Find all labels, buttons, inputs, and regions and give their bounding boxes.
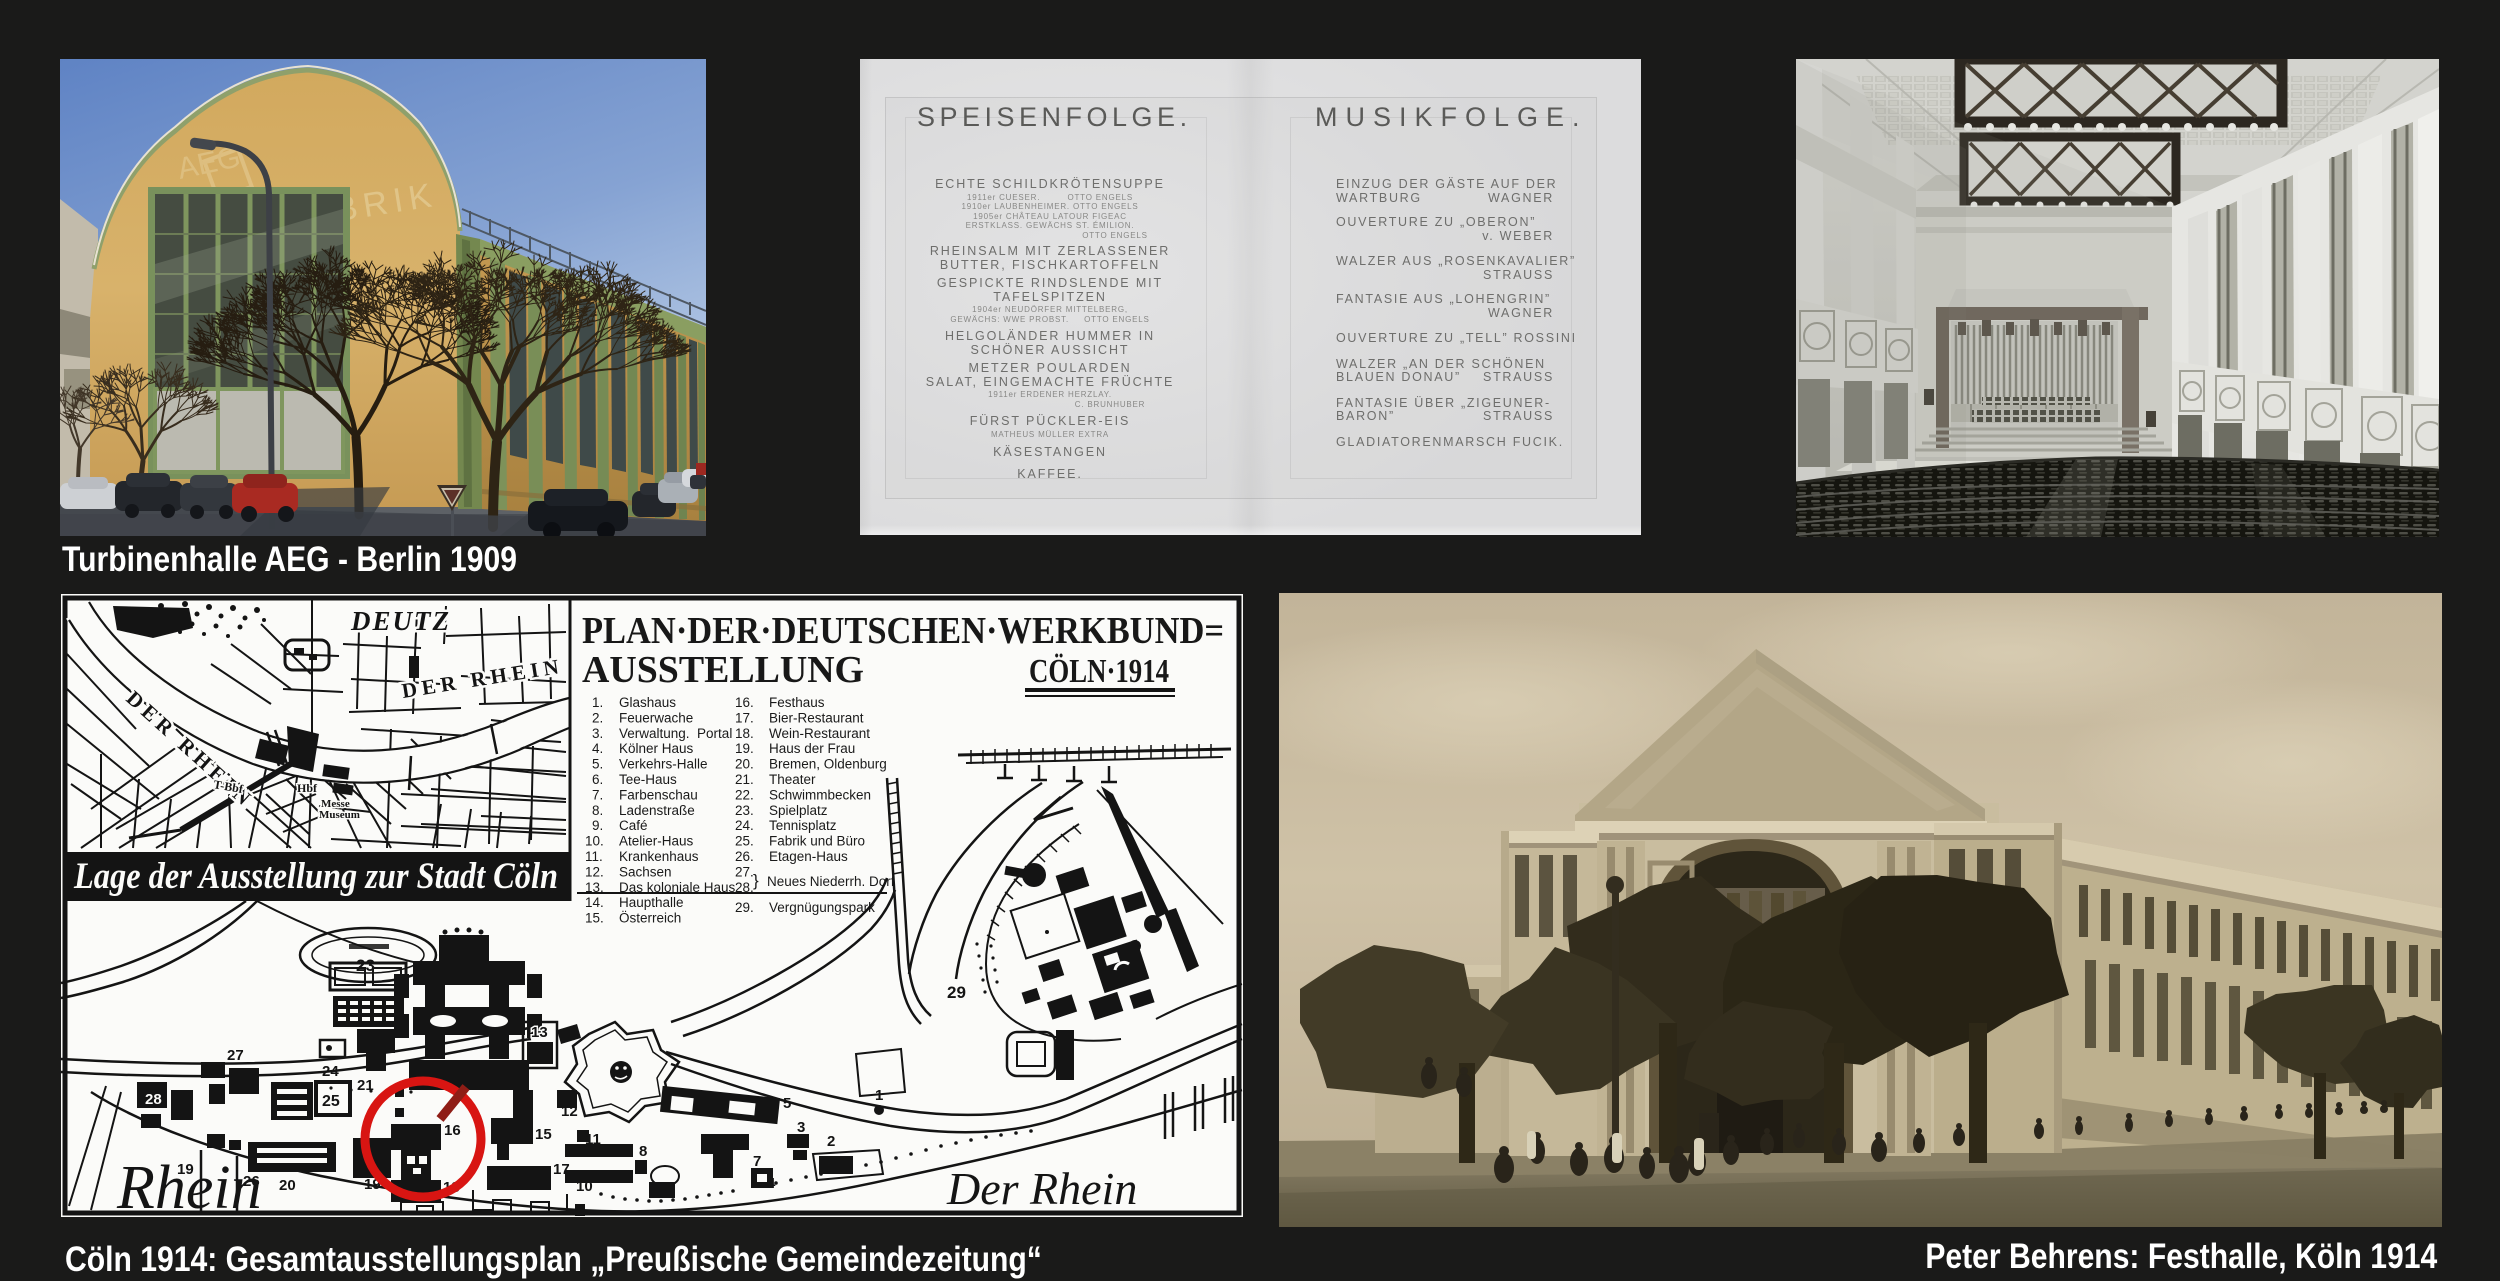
svg-text:13: 13 — [531, 1024, 548, 1041]
svg-text:PLAN·DER·DEUTSCHEN·WERKBUND=: PLAN·DER·DEUTSCHEN·WERKBUND= — [582, 610, 1224, 652]
svg-text:24.Tennisplatz: 24.Tennisplatz — [735, 818, 837, 833]
svg-text:16: 16 — [444, 1122, 461, 1139]
svg-text:28: 28 — [145, 1091, 162, 1108]
svg-text:24: 24 — [322, 1063, 339, 1080]
svg-text:CÖLN·1914: CÖLN·1914 — [1029, 653, 1169, 690]
svg-text:2: 2 — [827, 1133, 835, 1150]
svg-text:20: 20 — [279, 1177, 296, 1194]
svg-text:15.Österreich: 15.Österreich — [585, 911, 681, 926]
svg-text:5: 5 — [783, 1095, 791, 1112]
svg-text:14.Haupthalle: 14.Haupthalle — [585, 895, 684, 910]
svg-text:Der Rhein: Der Rhein — [946, 1163, 1137, 1214]
svg-text:7: 7 — [753, 1153, 761, 1170]
svg-text:27.: 27. — [735, 864, 754, 879]
svg-text:DEUTZ: DEUTZ — [350, 606, 451, 636]
svg-text:15: 15 — [535, 1126, 552, 1143]
svg-text:Neues Niederrh. Dorf: Neues Niederrh. Dorf — [767, 874, 895, 889]
svg-text:4: 4 — [767, 1175, 776, 1192]
svg-text:29: 29 — [947, 983, 966, 1002]
svg-text:3: 3 — [797, 1119, 805, 1136]
svg-text:}: } — [753, 871, 759, 890]
svg-text:Lage der Ausstellung zur Stadt: Lage der Ausstellung zur Stadt Cöln — [73, 856, 558, 897]
svg-text:23.Spielplatz: 23.Spielplatz — [735, 803, 828, 818]
svg-text:8: 8 — [639, 1143, 647, 1160]
svg-text:10.Atelier-Haus: 10.Atelier-Haus — [585, 834, 694, 849]
svg-text:9.Café: 9.Café — [592, 818, 648, 833]
svg-text:Hbf: Hbf — [297, 781, 318, 795]
svg-text:27: 27 — [227, 1047, 244, 1064]
svg-text:25: 25 — [322, 1093, 340, 1110]
svg-text:Rhein: Rhein — [116, 1154, 262, 1217]
svg-text:19.Haus der Frau: 19.Haus der Frau — [735, 741, 855, 756]
svg-text:12: 12 — [561, 1103, 578, 1120]
svg-text:11.Krankenhaus: 11.Krankenhaus — [585, 849, 699, 864]
svg-text:26.Etagen-Haus: 26.Etagen-Haus — [735, 849, 848, 864]
svg-text:21.Theater: 21.Theater — [735, 772, 816, 787]
svg-text:16.Festhaus: 16.Festhaus — [735, 695, 825, 710]
svg-text:21: 21 — [357, 1077, 374, 1094]
svg-text:AUSSTELLUNG: AUSSTELLUNG — [582, 649, 864, 691]
svg-text:12.Sachsen: 12.Sachsen — [585, 864, 672, 879]
